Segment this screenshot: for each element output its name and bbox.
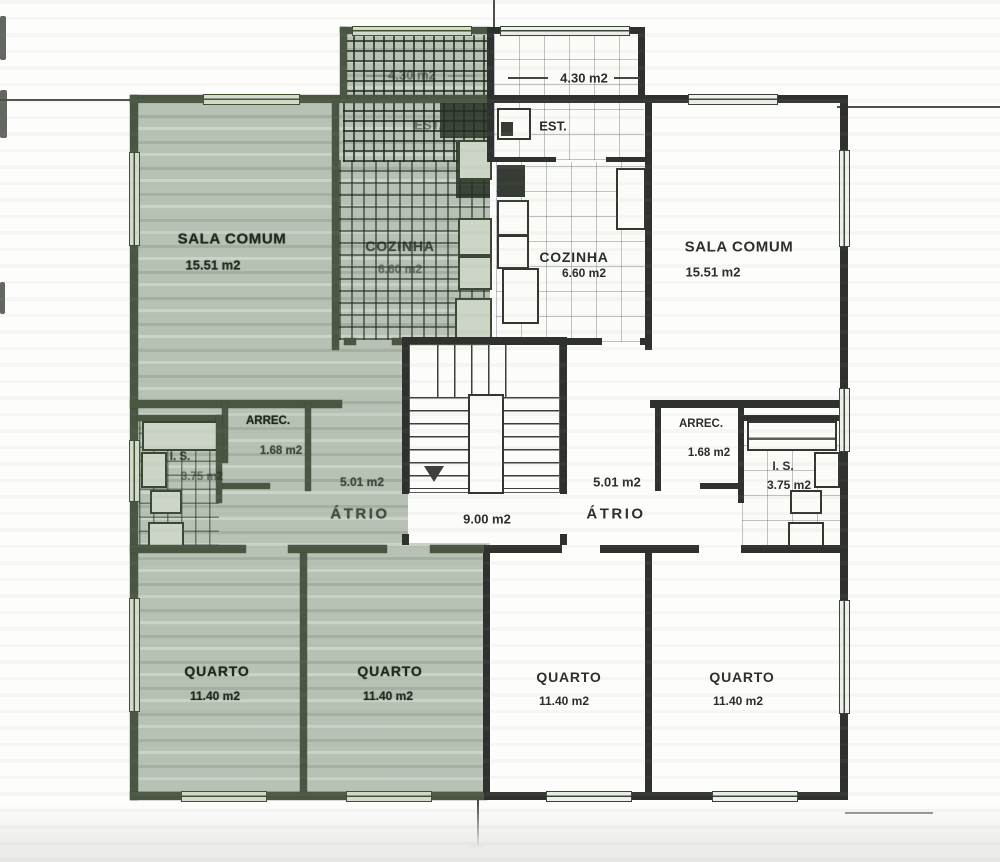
room-area-left-atrio: 5.01 m2 (340, 475, 384, 489)
room-area-right-sala: 15.51 m2 (686, 265, 741, 280)
kitchen-counter-right (497, 235, 529, 269)
room-area-right-quarto-1: 11.40 m2 (539, 694, 589, 708)
stair-wall (560, 344, 567, 494)
wall-segment (741, 545, 848, 553)
room-label-left-atrio: ÁTRIO (330, 506, 389, 523)
stair-wall (402, 344, 409, 494)
kitchen-sink-right (502, 268, 539, 324)
wall-segment (344, 338, 356, 345)
stair-newel (468, 394, 504, 494)
wall-segment (640, 338, 648, 345)
toilet-tank-left (150, 490, 182, 514)
window (203, 94, 300, 105)
room-label-left-cozinha: COZINHA (365, 238, 434, 254)
room-area-left-quarto-1: 11.40 m2 (190, 689, 240, 703)
wall-segment (288, 545, 387, 553)
duct-fill (501, 122, 513, 136)
window (352, 26, 472, 36)
room-label-right-quarto-1: QUARTO (536, 669, 601, 685)
wall-segment (484, 545, 562, 553)
wall-segment (216, 415, 222, 503)
wall-segment (600, 545, 699, 553)
sink-left (141, 452, 167, 488)
room-label-right-is: I. S. (772, 459, 793, 473)
dimension-line (614, 77, 640, 79)
room-area-right-arrec: 1.68 m2 (688, 447, 730, 459)
stair-wall (402, 337, 567, 344)
wall-segment (340, 27, 347, 102)
bottom-right-ground-line (845, 812, 933, 814)
kitchen-fridge-right (616, 168, 646, 230)
room-area-right-is: 3.75 m2 (767, 478, 811, 492)
window (712, 791, 798, 802)
room-label-left-est: EST. (414, 118, 441, 133)
wall-segment (130, 95, 490, 103)
stair-wall (402, 534, 409, 545)
wall-segment (650, 400, 848, 408)
wall-segment (222, 403, 228, 463)
room-label-right-cozinha: COZINHA (539, 249, 608, 265)
wall-segment (430, 545, 487, 553)
scan-artifact (0, 282, 5, 314)
room-area-right-atrio: 5.01 m2 (593, 475, 641, 490)
room-label-right-atrio: ÁTRIO (586, 506, 645, 523)
window (839, 600, 850, 714)
room-label-left-arrec: ARREC. (246, 415, 290, 427)
room-area-left-is: 3.75 m2 (181, 471, 223, 483)
wall-segment (606, 157, 648, 162)
room-area-left-est: 4.30 m2 (388, 68, 436, 83)
party-wall (483, 553, 490, 793)
wall-segment (332, 102, 339, 350)
wall-segment (738, 415, 744, 503)
wall-segment (645, 102, 652, 350)
window (500, 26, 630, 36)
window (129, 598, 140, 712)
wall-segment (645, 553, 652, 793)
wall-segment (305, 403, 311, 491)
room-label-right-quarto-2: QUARTO (709, 669, 774, 685)
kitchen-counter-left (458, 256, 492, 290)
wall-segment (638, 27, 645, 102)
duct-fill (497, 165, 525, 197)
window (839, 388, 850, 452)
room-area-right-cozinha: 6.60 m2 (562, 266, 606, 280)
room-area-left-quarto-2: 11.40 m2 (363, 689, 413, 703)
window (129, 152, 140, 246)
wall-segment (300, 553, 307, 793)
toilet-tank-right (790, 490, 822, 514)
wall-segment (137, 415, 222, 421)
scan-artifact (0, 90, 7, 138)
room-label-left-quarto-1: QUARTO (184, 663, 249, 679)
stair-direction-arrow-icon (424, 466, 444, 482)
room-label-left-is: I. S. (170, 451, 190, 463)
wall-segment (487, 95, 848, 103)
wall-segment (494, 157, 556, 162)
wall-segment (222, 483, 270, 489)
kitchen-counter-left (458, 218, 492, 256)
stair-wall (560, 534, 567, 545)
wall-segment (655, 403, 661, 491)
room-area-stairwell: 9.00 m2 (463, 512, 511, 527)
room-area-left-arrec: 1.68 m2 (260, 445, 302, 457)
window (346, 791, 432, 802)
right-axis-line (837, 106, 1000, 108)
room-label-left-quarto-2: QUARTO (357, 663, 422, 679)
room-area-right-quarto-2: 11.40 m2 (713, 694, 763, 708)
kitchen-counter-right (497, 200, 529, 236)
room-area-left-cozinha: 6.60 m2 (378, 262, 422, 276)
room-label-right-est: EST. (539, 119, 566, 134)
axis-tick (470, 845, 484, 847)
wall-segment (738, 415, 841, 421)
bathtub-left (142, 421, 226, 451)
room-label-right-sala: SALA COMUM (685, 239, 794, 256)
shaft-dark-patch (440, 100, 492, 138)
stair-upper-flight-treads (437, 345, 507, 397)
window (688, 94, 778, 105)
scan-artifact (0, 16, 6, 60)
sink-right (814, 452, 840, 488)
window (181, 791, 267, 802)
party-wall (487, 27, 494, 162)
wall-segment (130, 545, 246, 553)
window (129, 440, 140, 502)
bathtub-right (747, 421, 837, 451)
room-area-left-sala: 15.51 m2 (186, 258, 241, 273)
floor-plan-page: SALA COMUM 15.51 m2 4.30 m2 EST. COZINHA… (0, 0, 1000, 862)
window (839, 150, 850, 247)
room-label-right-arrec: ARREC. (679, 418, 723, 430)
dimension-line (508, 77, 548, 79)
room-area-right-est: 4.30 m2 (560, 71, 608, 86)
window (546, 791, 632, 802)
dimension-line (448, 75, 474, 77)
room-label-left-sala: SALA COMUM (178, 231, 287, 248)
